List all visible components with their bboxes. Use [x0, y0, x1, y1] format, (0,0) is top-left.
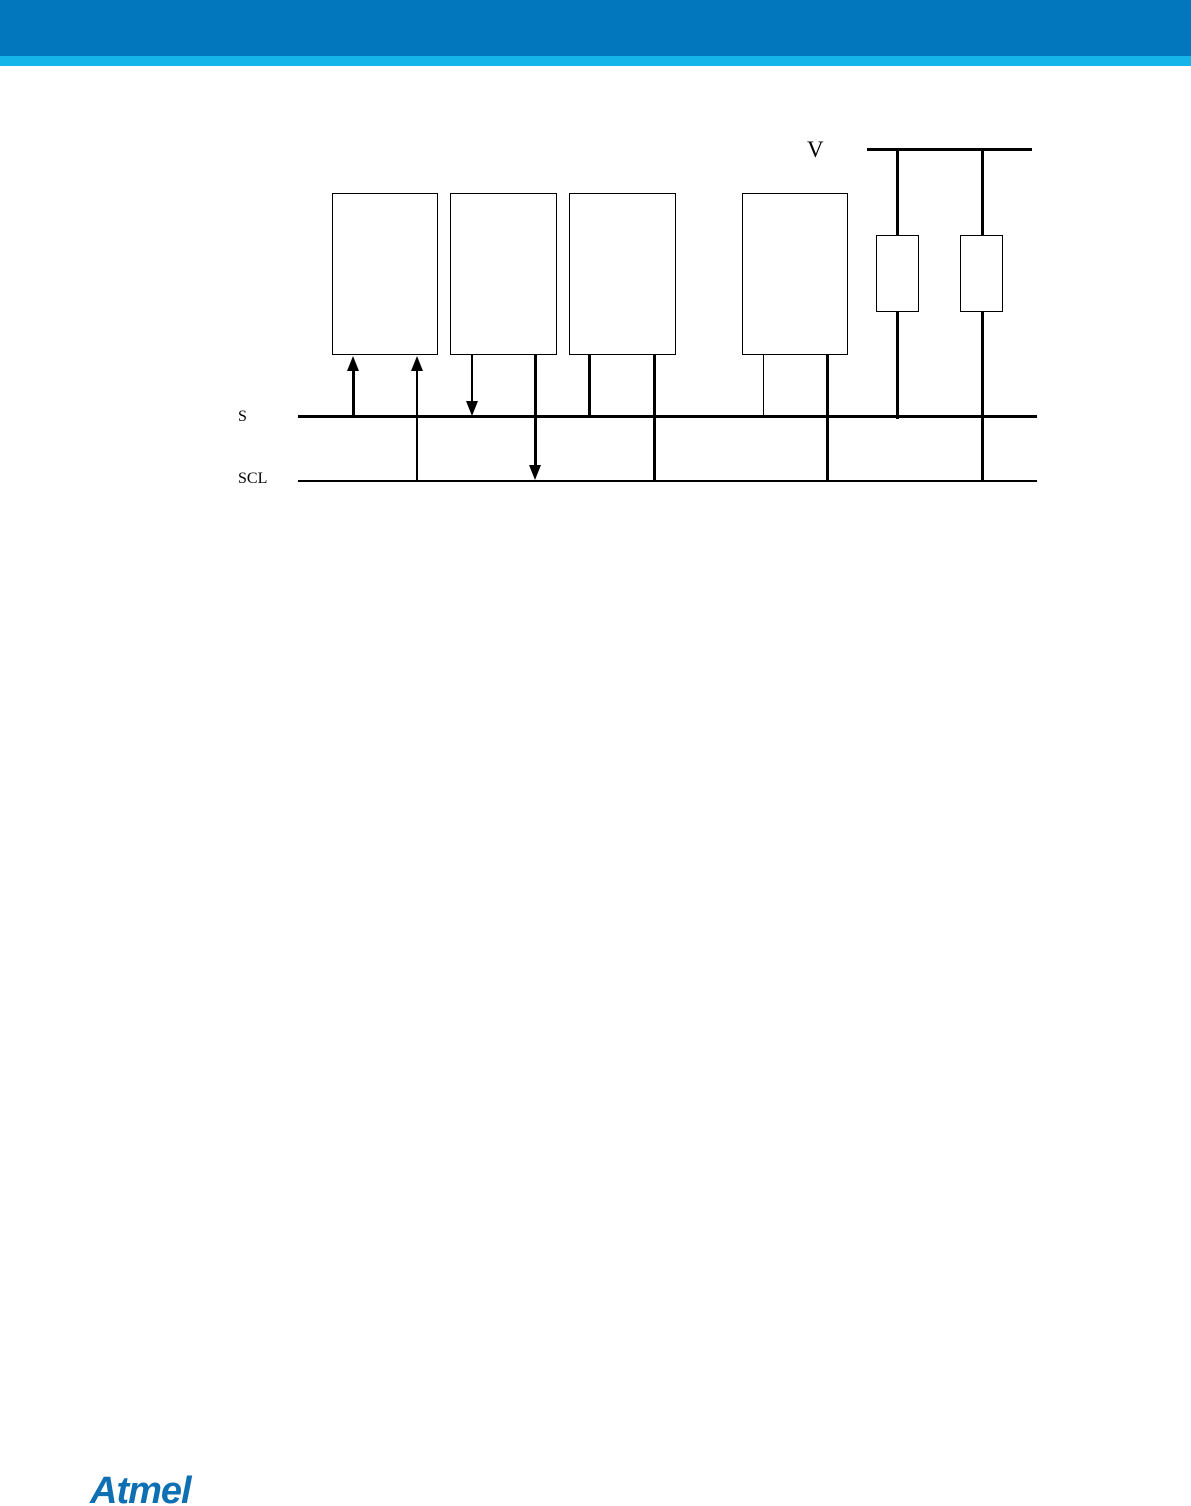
device2-scl-arrow-shaft	[534, 355, 537, 467]
device-box-3	[569, 193, 676, 355]
device3-scl-wire	[653, 354, 656, 482]
resistor1-top-wire	[896, 150, 899, 236]
vcc-label: V	[807, 138, 824, 161]
atmel-logo: Atmel	[90, 1472, 191, 1506]
scl-bus-label: SCL	[238, 471, 267, 487]
resistor1-bottom-wire	[896, 311, 899, 419]
device3-sda-wire	[588, 354, 591, 417]
pullup-resistor-1	[876, 235, 919, 312]
device-box-4	[742, 193, 848, 355]
datasheet-page: V S SCL	[0, 0, 1191, 1506]
device1-scl-arrow-shaft	[416, 368, 418, 481]
device4-sda-wire	[763, 354, 765, 417]
resistor2-bottom-wire	[981, 311, 984, 482]
pullup-resistor-2	[960, 235, 1003, 312]
device1-sda-arrow-shaft	[352, 368, 355, 417]
vcc-rail-line	[867, 148, 1032, 151]
header-accent-stripe	[0, 56, 1191, 66]
header-bar	[0, 0, 1191, 56]
device-box-2	[450, 193, 557, 355]
scl-bus-line	[298, 480, 1037, 482]
sda-bus-label: S	[238, 409, 247, 425]
sda-bus-line	[298, 415, 1037, 418]
device2-scl-down-arrowhead	[529, 465, 541, 480]
device-box-1	[332, 193, 438, 355]
device2-sda-arrow-shaft	[471, 355, 473, 404]
device4-scl-wire	[826, 354, 829, 482]
resistor2-top-wire	[981, 150, 984, 236]
device2-sda-down-arrowhead	[466, 401, 478, 416]
